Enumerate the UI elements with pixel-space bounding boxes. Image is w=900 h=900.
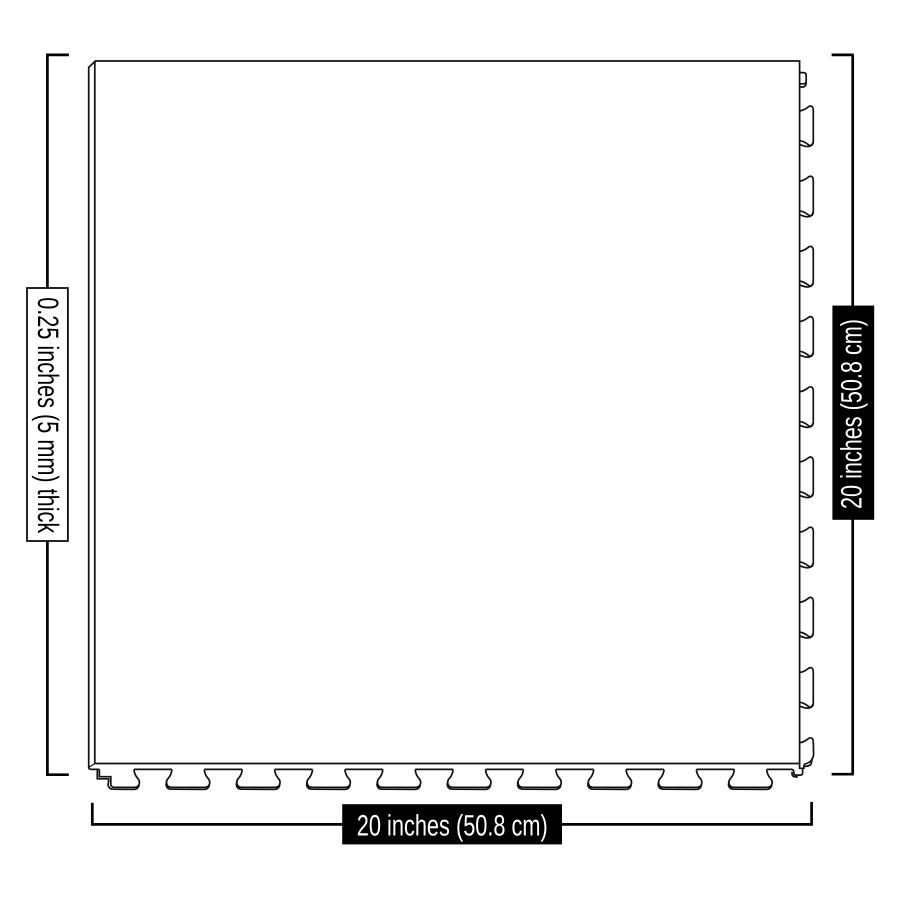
svg-text:20 inches (50.8 cm): 20 inches (50.8 cm) [835,319,868,509]
svg-text:20 inches (50.8 cm): 20 inches (50.8 cm) [357,810,548,843]
svg-text:0.25 inches (5 mm) thick: 0.25 inches (5 mm) thick [31,297,64,533]
